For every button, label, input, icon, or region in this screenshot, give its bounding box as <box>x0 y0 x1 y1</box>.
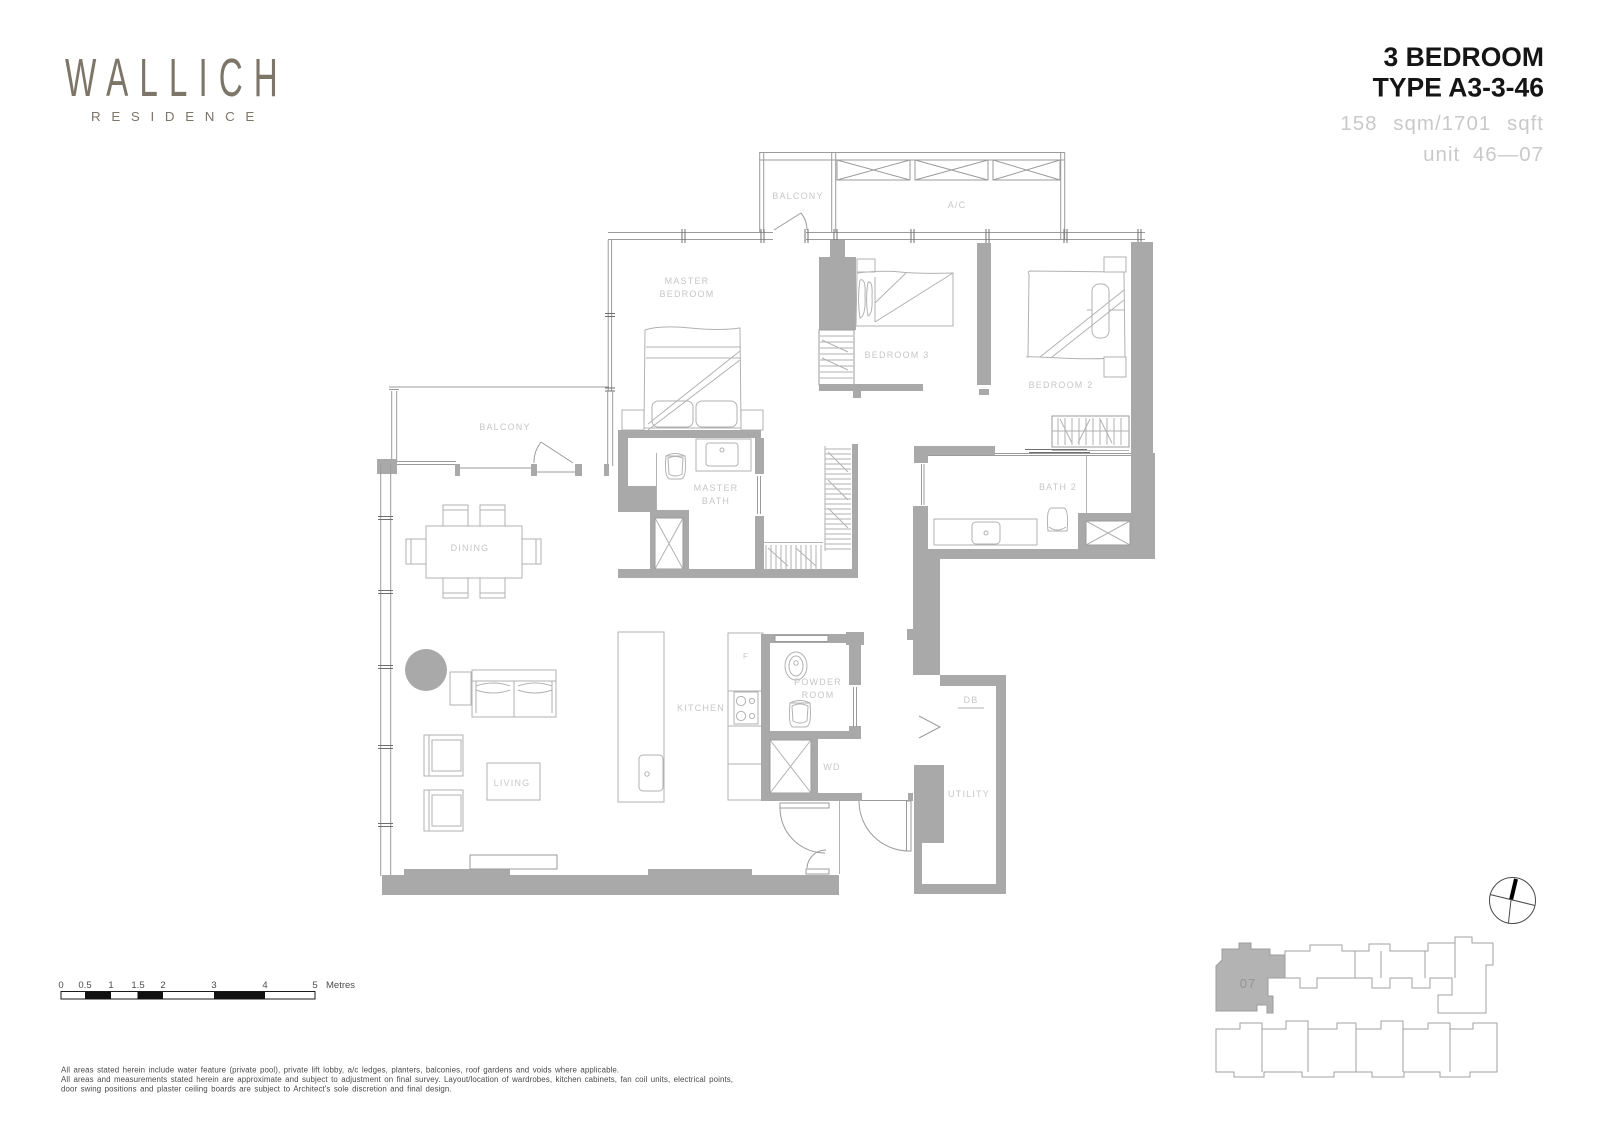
svg-text:BEDROOM 2: BEDROOM 2 <box>1029 380 1094 390</box>
svg-text:unit 46—07: unit 46—07 <box>1423 143 1544 166</box>
svg-text:LIVING: LIVING <box>494 778 531 788</box>
svg-text:DINING: DINING <box>451 543 490 553</box>
svg-text:0: 0 <box>58 980 63 991</box>
svg-text:Metres: Metres <box>326 980 355 991</box>
svg-text:All areas stated herein includ: All areas stated herein include water fe… <box>61 1066 619 1075</box>
svg-text:BEDROOM: BEDROOM <box>660 289 715 299</box>
svg-text:WALLICH: WALLICH <box>65 48 289 108</box>
svg-text:4: 4 <box>262 980 267 991</box>
svg-text:A/C: A/C <box>948 200 967 210</box>
svg-text:BALCONY: BALCONY <box>772 191 823 201</box>
svg-text:MASTER: MASTER <box>694 483 739 493</box>
svg-text:0.5: 0.5 <box>78 980 91 991</box>
svg-text:WD: WD <box>823 762 840 772</box>
svg-text:3: 3 <box>211 980 216 991</box>
svg-text:BATH: BATH <box>702 496 730 506</box>
svg-text:ROOM: ROOM <box>802 690 835 700</box>
svg-text:POWDER: POWDER <box>794 677 842 687</box>
svg-text:UTILITY: UTILITY <box>948 789 990 799</box>
svg-text:door swing positions and plast: door swing positions and plaster ceiling… <box>61 1085 452 1094</box>
svg-text:BEDROOM 3: BEDROOM 3 <box>865 350 930 360</box>
svg-text:F: F <box>743 652 749 661</box>
svg-text:1: 1 <box>108 980 113 991</box>
svg-text:07: 07 <box>1240 976 1256 991</box>
svg-text:All areas and measurements sta: All areas and measurements stated herein… <box>61 1075 733 1084</box>
svg-text:MASTER: MASTER <box>665 276 710 286</box>
svg-text:RESIDENCE: RESIDENCE <box>91 110 265 124</box>
svg-text:TYPE A3-3-46: TYPE A3-3-46 <box>1373 73 1544 103</box>
svg-text:158 sqm/1701 sqft: 158 sqm/1701 sqft <box>1340 112 1544 135</box>
svg-text:3 BEDROOM: 3 BEDROOM <box>1384 42 1545 72</box>
svg-text:5: 5 <box>312 980 317 991</box>
svg-text:2: 2 <box>160 980 165 991</box>
svg-text:BATH 2: BATH 2 <box>1039 482 1077 492</box>
svg-text:BALCONY: BALCONY <box>479 422 530 432</box>
svg-text:KITCHEN: KITCHEN <box>677 703 725 713</box>
svg-text:1.5: 1.5 <box>131 980 144 991</box>
svg-text:DB: DB <box>964 695 979 705</box>
